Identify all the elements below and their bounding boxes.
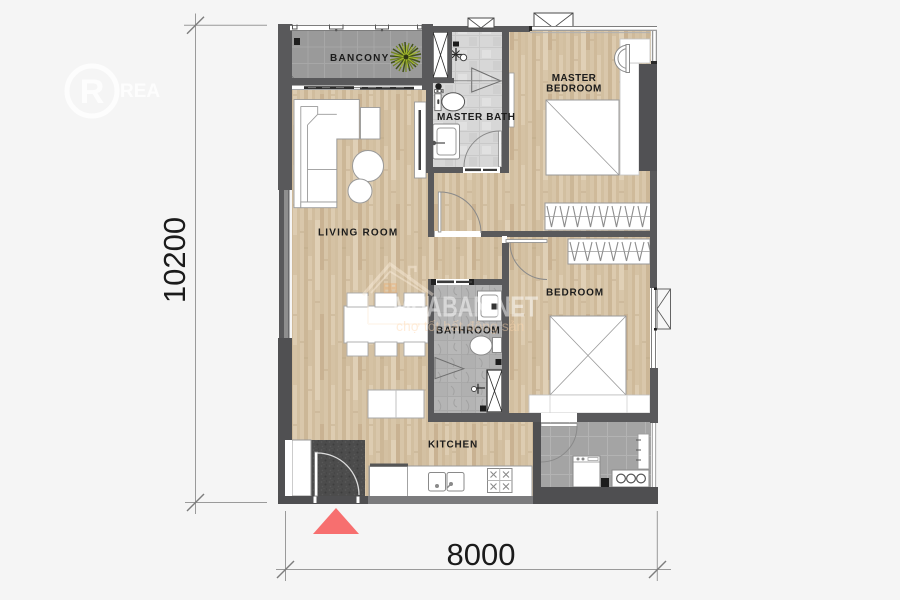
- svg-text:chợ tốt bất động sản: chợ tốt bất động sản: [396, 318, 524, 334]
- svg-text:10200: 10200: [157, 217, 192, 303]
- svg-text:KITCHEN: KITCHEN: [428, 440, 478, 451]
- svg-text:REA: REA: [120, 81, 160, 102]
- svg-text:BANCONY: BANCONY: [330, 53, 390, 64]
- svg-text:BEDROOM: BEDROOM: [546, 288, 604, 299]
- svg-text:MASTER BATH: MASTER BATH: [437, 112, 516, 123]
- svg-text:LIVING ROOM: LIVING ROOM: [318, 228, 398, 239]
- svg-text:R: R: [80, 73, 105, 111]
- svg-text:MASTER: MASTER: [552, 73, 597, 84]
- svg-text:BEDROOM: BEDROOM: [546, 84, 602, 95]
- svg-text:8000: 8000: [447, 537, 516, 572]
